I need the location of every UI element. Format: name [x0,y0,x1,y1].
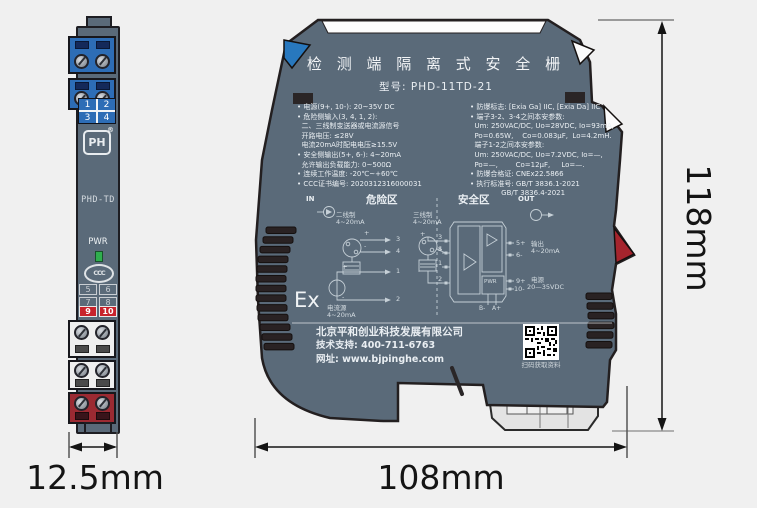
polarity-sign: + [364,229,369,237]
terminal-number-plate-1-4-item: 2 [98,99,115,110]
block-terminal: 2 [438,275,442,283]
power-range: 20—35VDC [527,283,564,291]
top-band [322,21,546,33]
terminal-number-plate-9-10: 910 [79,306,117,316]
terminal-block-red [68,392,116,424]
out-label: OUT [518,196,534,204]
qr-caption: 扫码获取资料 [515,362,567,369]
terminal-number-plate-9-10-item: 9 [79,306,97,317]
wire-slot [75,82,89,90]
three-wire-range: 4~20mA [413,218,442,226]
safety-barrier-dimension-diagram: 1234 PH ® PHD-TD PWR CCC 5678 910 [0,0,757,508]
wire-slot [96,82,110,90]
terminal-number-plate-1-4: 1234 [78,98,116,124]
model-number: 型号: PHD-11TD-21 [296,82,576,94]
spec-list-right-item: • 端子3-2、3-4之间本安参数: [470,113,614,123]
pin-a-label: A+ [492,305,501,312]
terminal-number-plate-1-4-item: 1 [79,99,96,110]
product-title: 检 测 端 隔 离 式 安 全 栅 [296,56,576,73]
wire-slot [96,412,110,420]
spec-list-left-item: 开路电压: ≤28V [297,132,422,142]
spec-list-right-item: Po=0.65W, Co=0.083μF, Lo=4.2mH. [470,132,614,142]
brand-logo: PH ® [83,130,111,155]
terminal-block-bottom-1 [68,320,116,358]
mini-terminal: 4 [396,247,400,255]
side-view-drawing [250,14,670,446]
screw-icon [95,325,110,340]
terminal-number-plate-1-4-item: 4 [98,112,115,123]
polarity-sign: + [342,263,347,271]
terminal-number-plate-9-10-item: 10 [99,306,117,317]
in-label: IN [306,196,314,204]
terminal-block-top-1 [68,36,116,74]
polarity-sign: - [418,267,420,275]
spec-list-left-item: 允许输出负载能力: 0~500Ω [297,161,422,171]
block-terminal: 6- [516,251,522,259]
current-source-range: 4~20mA [327,311,356,319]
spec-list-right-item: Po=—, Co=12μF, Lo=—. [470,161,614,171]
terminal-number-plate-1-4-item: 3 [79,112,96,123]
spec-list-right-item: • 防爆合格证: CNEx22.5866 [470,170,614,180]
safe-zone-label: 安全区 [458,195,490,207]
brand-logo-text: PH [88,136,105,149]
wire-slot [75,412,89,420]
spec-list-left-item: • 连续工作温度: -20℃~+60℃ [297,170,422,180]
wire-slot [75,41,89,49]
support-phone: 技术支持: 400-711-6763 [316,341,435,351]
wire-slot [75,379,89,387]
block-terminal: 10- [514,285,525,293]
spec-list-right-item: • 防爆标志: [Exia Ga] IIC, [Exia Da] IIC [470,103,614,113]
spec-list-right-item: • 执行标准号: GB/T 3836.1-2021 [470,180,614,190]
spec-list-left-item: 二、三线制变送器或电流源信号 [297,122,422,132]
pwr-box-label: PWR [484,279,497,285]
spec-list-right-item: Um: 250VAC/DC, Uo=7.2VDC, Io=—, [470,151,614,161]
ccc-certification-mark: CCC [84,264,114,283]
spec-list-left-item: • 安全侧输出(5+, 6-): 4~20mA [297,151,422,161]
block-terminal: 1 [438,259,442,267]
terminal-block-bottom-2 [68,360,116,390]
spec-list-left: • 电源(9+, 10-): 20~35V DC• 危险侧输入(3, 4, 1,… [297,103,422,189]
polarity-sign: + [420,230,425,238]
spec-list-left-item: • CCC证书编号: 2020312316000031 [297,180,422,190]
two-wire-range: 4~20mA [336,218,365,226]
website: 网址: www.bjpinghe.com [316,355,444,365]
spec-list-right-item: 端子1-2之间本安参数: [470,141,614,151]
mini-terminal: 1 [396,267,400,275]
polarity-sign: - [364,242,366,250]
wire-slot [96,41,110,49]
screw-icon [74,54,89,69]
spec-list-right-item: GB/T 3836.4-2021 [470,189,614,199]
dimension-side-width: 108mm [341,458,541,497]
wire-slot [75,345,89,353]
company-name: 北京平和创业科技发展有限公司 [316,327,463,339]
block-terminal: 3 [438,233,442,241]
pin-b-label: B- [479,305,485,312]
block-terminal: 9+ [516,277,526,285]
front-model-label: PHD-TD [74,196,122,205]
power-led [95,251,103,262]
front-bottom-tab [84,422,112,434]
pwr-label: PWR [74,238,122,247]
screw-icon [74,396,89,411]
screw-icon [95,363,110,378]
ex-mark: Ex [294,289,320,312]
screw-icon [95,54,110,69]
terminal-number-plate-5-8: 5678 [79,284,117,304]
registered-mark: ® [107,127,114,134]
polarity-sign: - [342,293,344,301]
block-terminal: 4 [438,245,442,253]
output-range: 4~20mA [531,247,560,255]
screw-icon [74,363,89,378]
spec-list-right-item: Um: 250VAC/DC, Uo=28VDC, Io=93mA, [470,122,614,132]
spec-list-left-item: • 危险侧输入(3, 4, 1, 2): [297,113,422,123]
hazard-zone-label: 危险区 [366,195,398,207]
screw-icon [95,396,110,411]
dimension-front-width: 12.5mm [0,458,190,497]
wire-slot [96,345,110,353]
spec-list-left-item: 电流20mA时配电电压≥15.5V [297,141,422,151]
screw-icon [74,325,89,340]
mini-terminal: 2 [396,295,400,303]
spec-list-right: • 防爆标志: [Exia Ga] IIC, [Exia Da] IIC• 端子… [470,103,614,199]
spec-list-left-item: • 电源(9+, 10-): 20~35V DC [297,103,422,113]
dimension-height: 118mm [677,148,719,308]
block-terminal: 5+ [516,239,526,247]
mini-terminal: 3 [396,235,400,243]
terminal-number-plate-5-8-item: 6 [99,284,117,295]
mount-slot [565,92,585,103]
qr-code [523,324,559,360]
wire-slot [96,379,110,387]
terminal-number-plate-5-8-item: 5 [79,284,97,295]
